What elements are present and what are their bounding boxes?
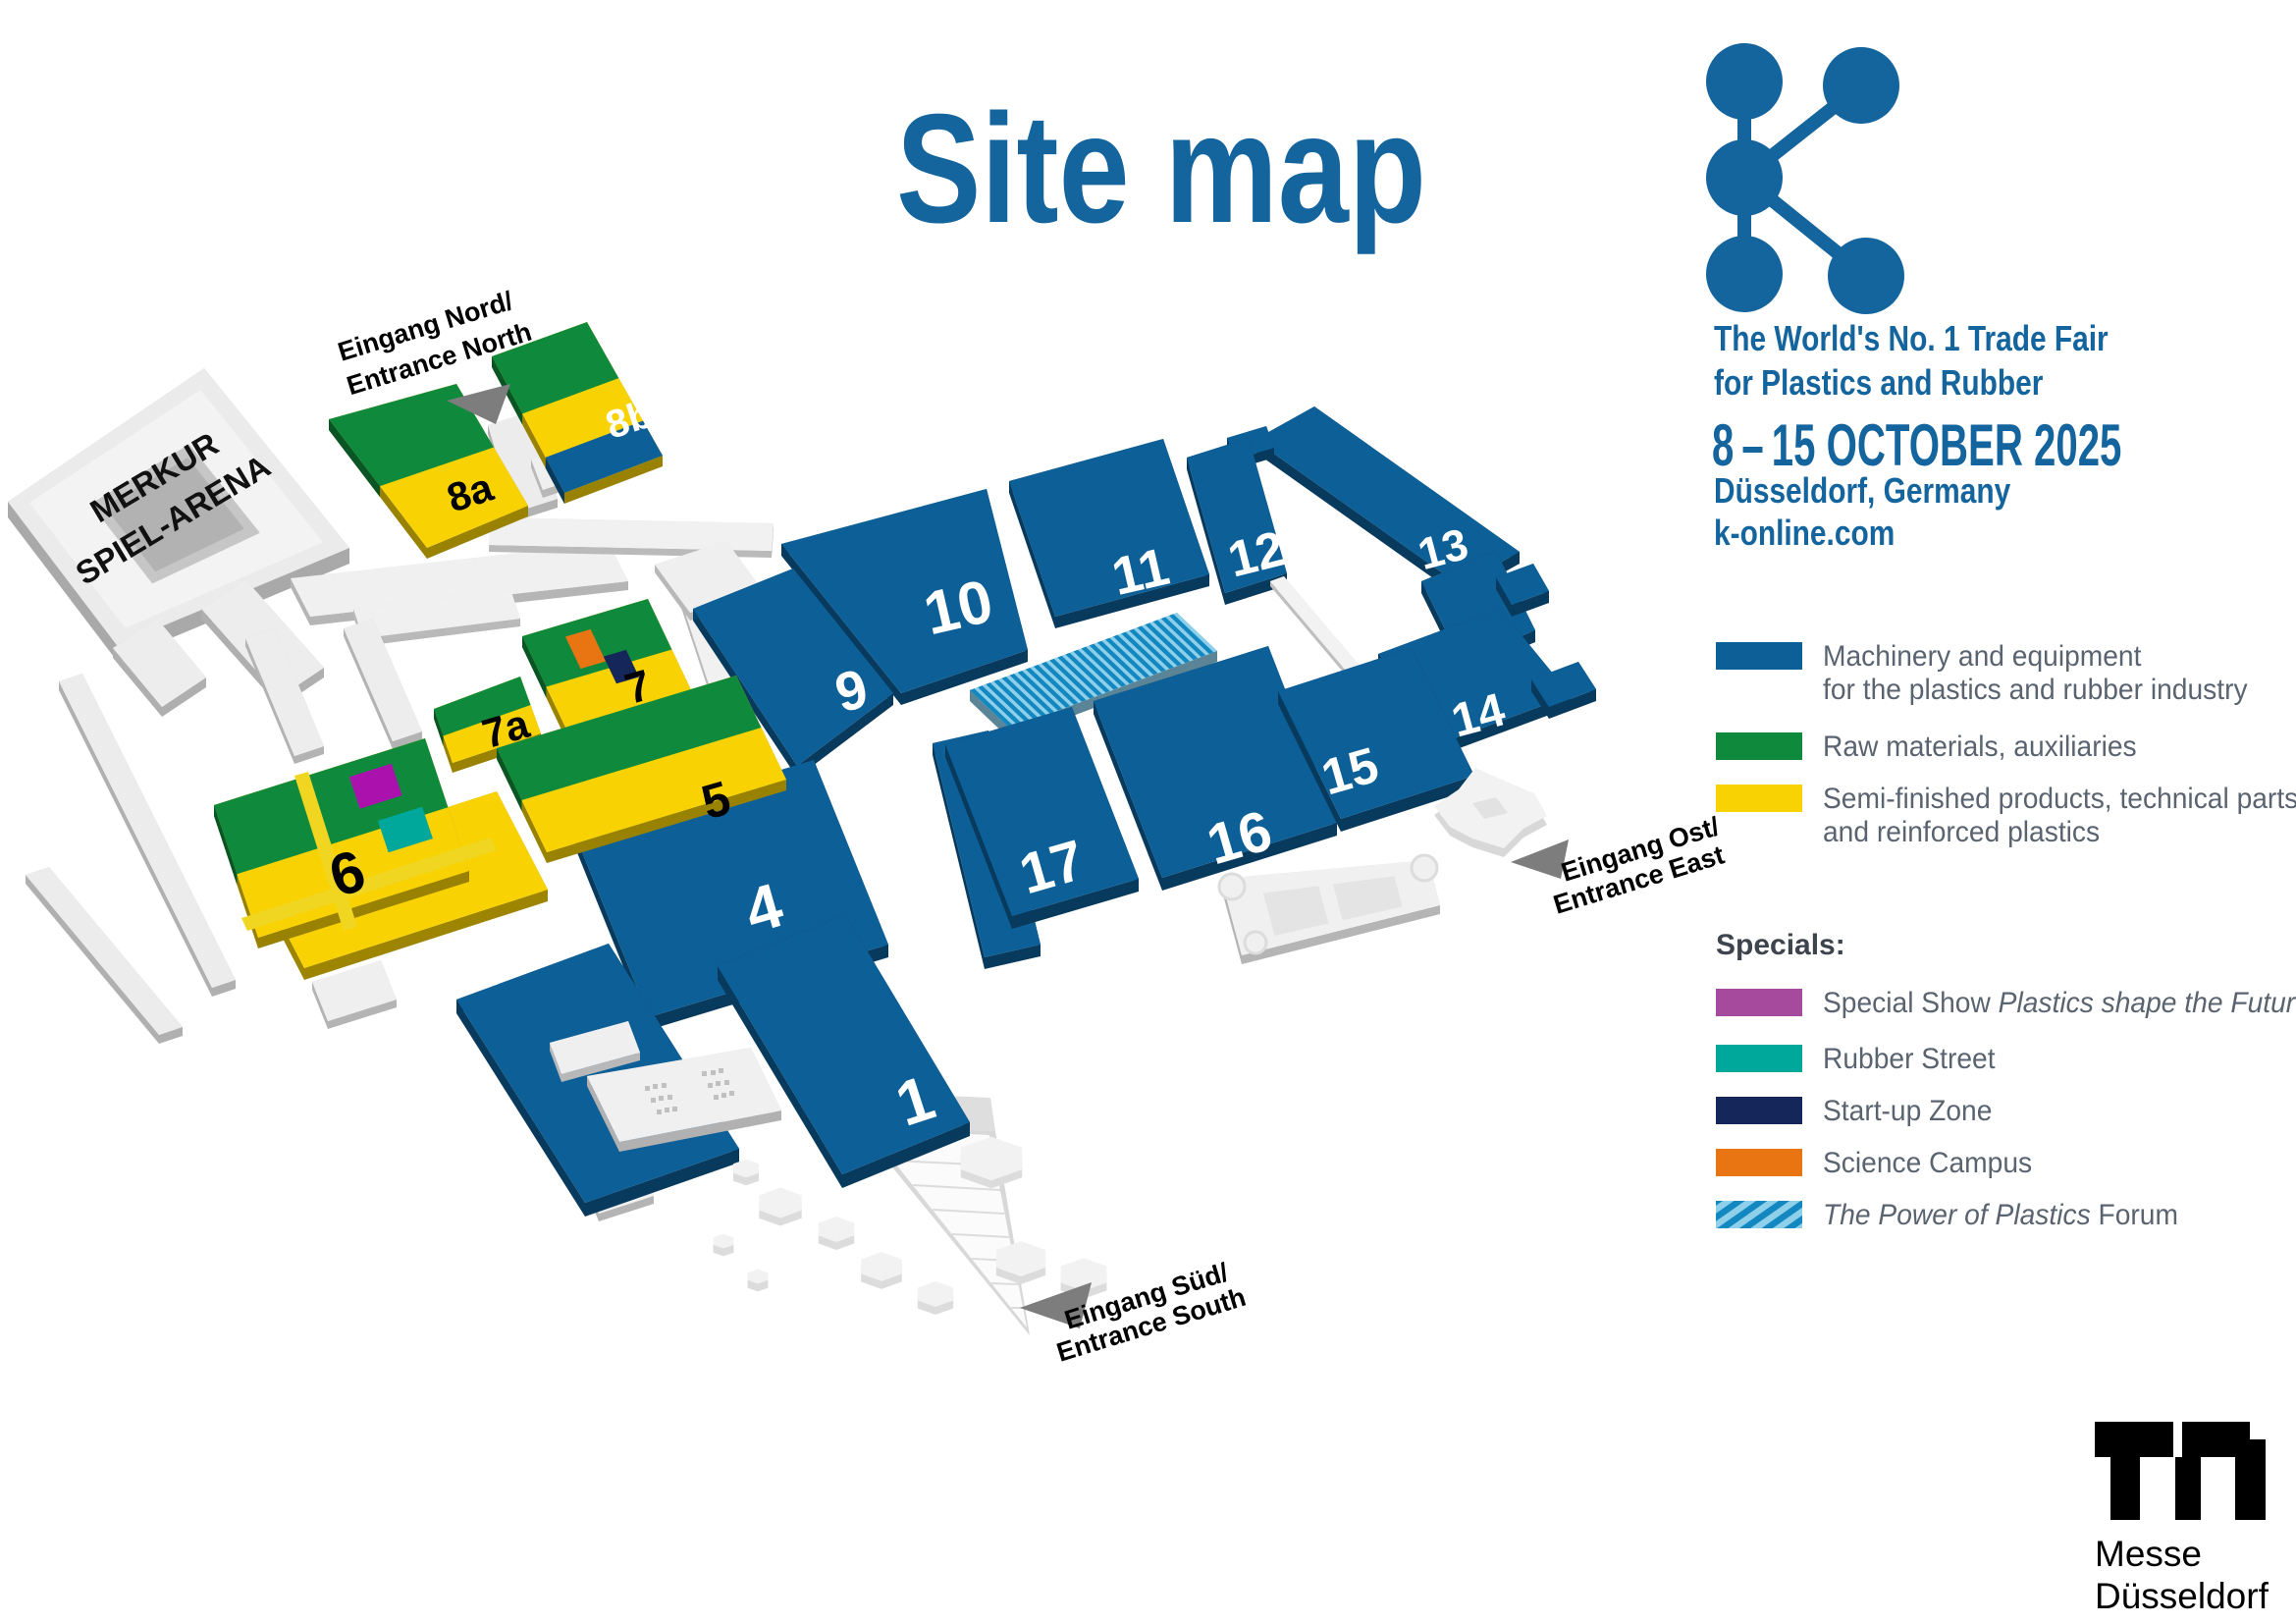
svg-text:The World's No. 1 Trade Fair: The World's No. 1 Trade Fair: [1714, 319, 2109, 358]
svg-text:Science Campus: Science Campus: [1823, 1147, 2032, 1179]
svg-text:The Power of Plastics Forum: The Power of Plastics Forum: [1823, 1199, 2178, 1231]
svg-text:Düsseldorf, Germany: Düsseldorf, Germany: [1714, 471, 2011, 511]
svg-text:Semi-finished products, techni: Semi-finished products, technical parts: [1823, 783, 2296, 815]
svg-text:Special Show Plastics shape th: Special Show Plastics shape the Future: [1823, 987, 2296, 1019]
svg-text:Messe: Messe: [2095, 1534, 2202, 1574]
svg-text:Machinery and equipment: Machinery and equipment: [1823, 640, 2141, 673]
svg-text:for Plastics and Rubber: for Plastics and Rubber: [1714, 363, 2043, 403]
svg-text:Start-up Zone: Start-up Zone: [1823, 1095, 1992, 1127]
svg-text:and reinforced plastics: and reinforced plastics: [1823, 816, 2100, 848]
svg-text:8 – 15 OCTOBER 2025: 8 – 15 OCTOBER 2025: [1712, 412, 2121, 478]
svg-text:for the plastics and rubber in: for the plastics and rubber industry: [1823, 674, 2248, 706]
svg-text:Düsseldorf: Düsseldorf: [2095, 1576, 2269, 1616]
svg-text:Specials:: Specials:: [1716, 929, 1845, 961]
svg-text:k-online.com: k-online.com: [1714, 514, 1895, 553]
svg-text:Rubber Street: Rubber Street: [1823, 1043, 1996, 1075]
svg-text:Site map: Site map: [896, 81, 1426, 255]
svg-text:Raw materials, auxiliaries: Raw materials, auxiliaries: [1823, 731, 2137, 763]
